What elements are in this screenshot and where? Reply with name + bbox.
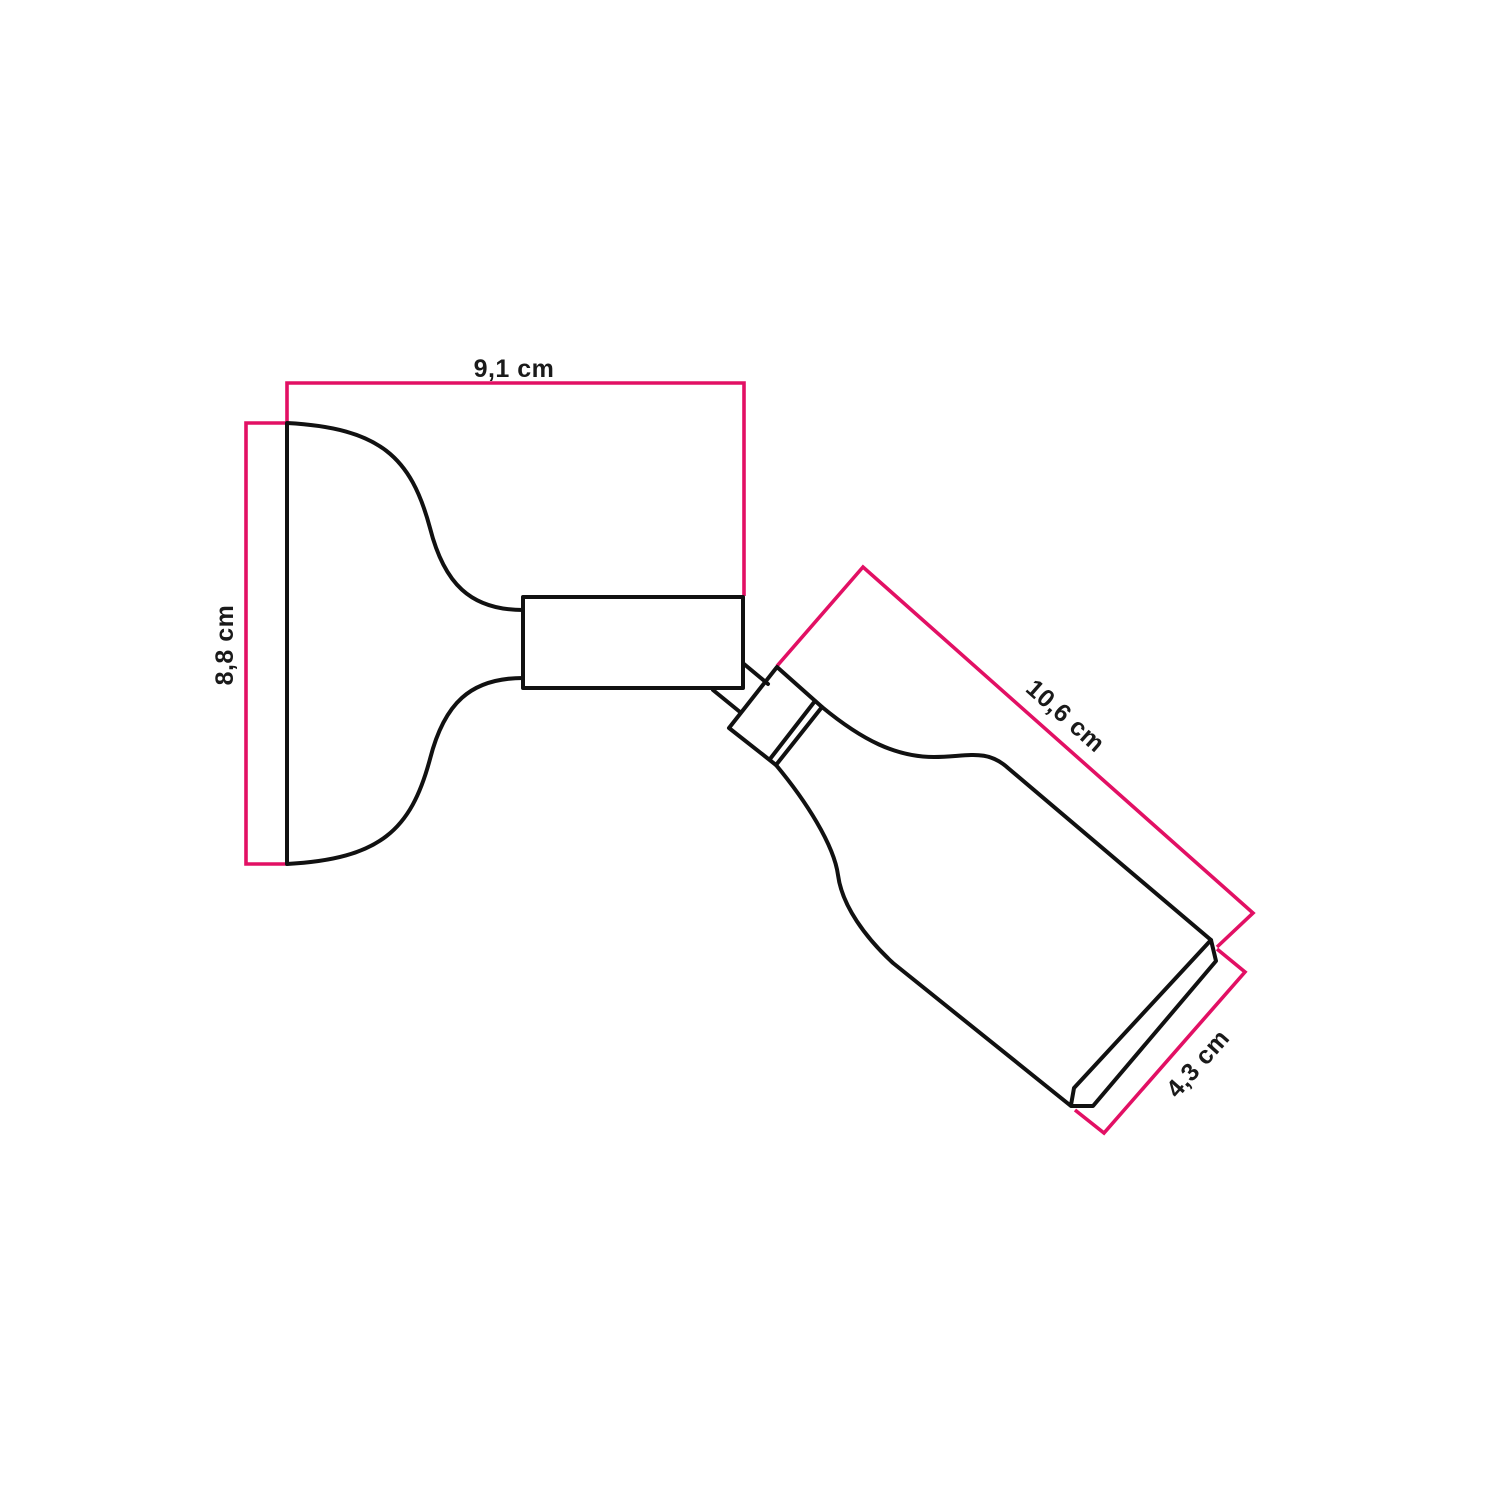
dimension-diagram: 9,1 cm 8,8 cm 10,6 cm 4,3 cm	[0, 0, 1500, 1500]
dimension-bracket-holder-length	[777, 567, 1253, 947]
lamp-outline	[287, 423, 1216, 1106]
dimension-bracket-depth	[287, 383, 744, 596]
joint-cylinder	[523, 597, 743, 688]
hinge-cap-edge	[770, 701, 815, 759]
dimension-bracket-plate	[246, 423, 287, 864]
dimension-labels: 9,1 cm 8,8 cm 10,6 cm 4,3 cm	[211, 355, 1235, 1103]
dimension-diagram-svg: 9,1 cm 8,8 cm 10,6 cm 4,3 cm	[0, 0, 1500, 1500]
dimension-label-plate: 8,8 cm	[211, 605, 239, 686]
dimension-brackets	[246, 383, 1253, 1133]
lamp-holder-outline	[776, 707, 1216, 1106]
wall-plate-and-trumpet	[287, 423, 523, 864]
dimension-label-holder-diameter: 4,3 cm	[1161, 1024, 1236, 1103]
dimension-label-depth: 9,1 cm	[474, 355, 555, 383]
hinge-stub-bottom	[713, 690, 740, 712]
